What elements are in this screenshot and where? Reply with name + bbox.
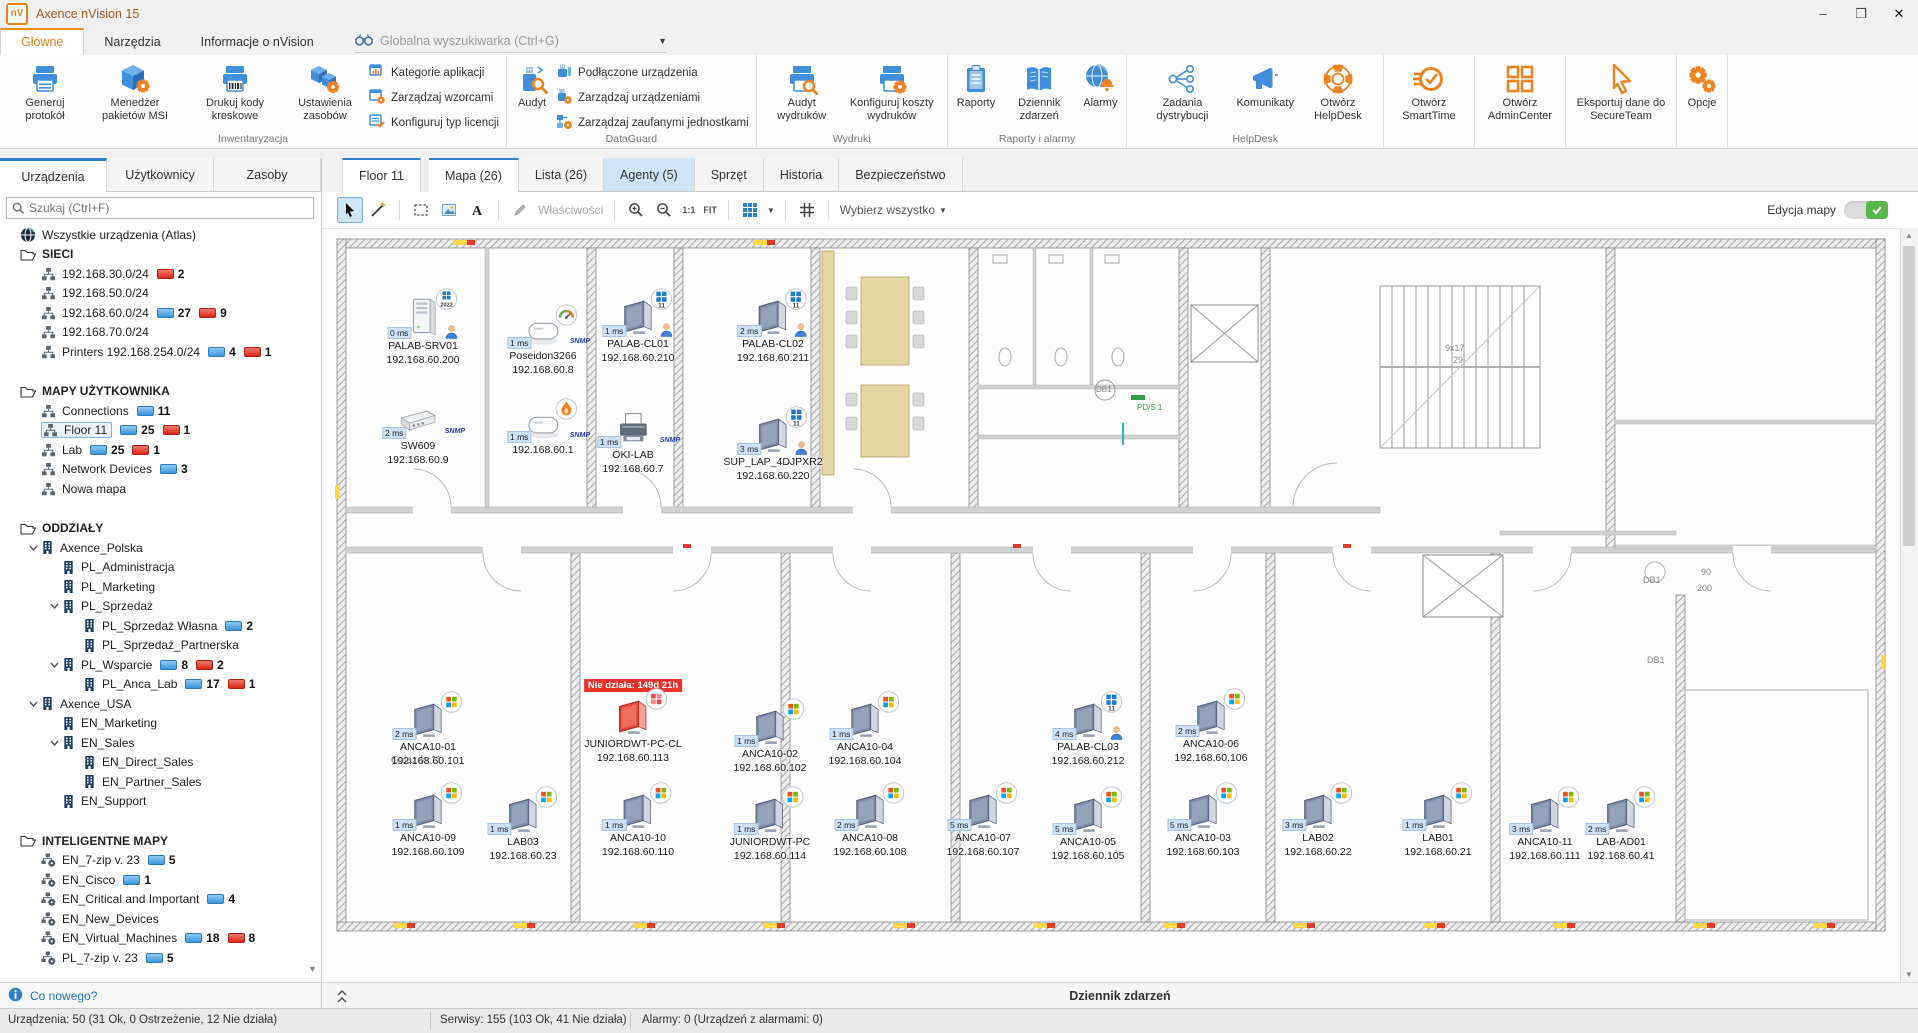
ribbon-item-zarz-dzaj-wzorcami[interactable]: Zarządzaj wzorcami [369,88,499,107]
grid-blue-icon [742,202,758,218]
map-tab-lista-26[interactable]: Lista (26) [519,158,604,192]
tree-item-en-new-devices[interactable]: EN_New_Devices [0,909,314,929]
tree-item-pl-sprzeda-w-asna[interactable]: PL_Sprzedaż Własna2 [0,616,314,636]
ping-time-chip: 5 ms [947,819,971,831]
ribbon-button-komunikaty[interactable]: Komunikaty [1232,58,1297,112]
printer-icon [29,60,61,97]
device-name: LAB-AD01 [1587,836,1654,850]
ping-time-chip: 1 ms [602,819,626,831]
smartmap-icon [41,931,56,945]
tree-item-en-cisco[interactable]: EN_Cisco1 [0,870,314,890]
logged-user-icon [793,440,809,459]
toolbar-separator [728,200,729,220]
tree-item-label: PL_Anca_Lab [102,677,177,691]
ribbon-button-audyt-wydruk-w[interactable]: Audyt wydruków [762,58,842,124]
ribbon-group-x: Otwórz AdminCenter [1475,55,1566,148]
ribbon-item-konfiguruj-typ-licencji[interactable]: Konfiguruj typ licencji [369,113,499,132]
device-juniordwt-pc-cl[interactable]: Nie działa: 149d 21h JUNIORDWT-PC-CL192.… [584,697,681,765]
device-name: ANCA10-07 [947,832,1020,846]
tree-item-192-168-50-0-24[interactable]: 192.168.50.0/24 [0,284,314,304]
ok-count-chip [137,406,154,416]
lifebuoy-icon [1322,60,1354,97]
device-name: LAB02 [1284,832,1351,846]
ribbon-button-label: Drukuj kody kreskowe [189,97,281,122]
ribbon-button-label: Audyt wydruków [766,97,838,122]
logged-user-icon [658,322,674,341]
win-check-icon [369,113,385,132]
map-annotation: DB1 [1096,385,1112,394]
tree-item-sieci[interactable]: SIECI [0,245,314,265]
map-tab-bezpiecze-stwo[interactable]: Bezpieczeństwo [839,158,962,192]
device-lab02[interactable]: 3 ms LAB02192.168.60.22 [1284,791,1351,859]
toolbar-wybierz-wszystko[interactable]: Wybierz wszystko▼ [840,203,947,217]
sidebar-tabs: UrządzeniaUżytkownicyZasoby [0,158,322,192]
building-icon [62,657,75,672]
tree-item-label: ODDZIAŁY [42,521,103,535]
monitor-icon: 5 ms [962,791,1004,832]
device-oki-lab[interactable]: 1 msSNMP OKI-LAB192.168.60.7 [602,410,663,476]
tree-scroll-down-icon[interactable]: ▼ [308,964,317,974]
tree-item-en-critical-and-important[interactable]: EN_Critical and Important4 [0,890,314,910]
ribbon-group-label [1475,132,1565,148]
tree-item-pl-wsparcie[interactable]: PL_Wsparcie82 [0,655,314,675]
svg-text:A: A [472,204,483,218]
map-tab-agenty-5[interactable]: Agenty (5) [604,158,695,192]
tree-item-pl-sprzeda-partnerska[interactable]: PL_Sprzedaż_Partnerska [0,636,314,656]
device-ip: 192.168.60.106 [1175,752,1248,766]
ribbon-group-inwentaryzacja: Generuj protokółMenedżer pakietów MSIDru… [0,55,507,148]
ribbon-group-label [1566,132,1676,148]
device-ip: 192.168.60.41 [1587,850,1654,864]
tree-item-pl-7-zip-v-23[interactable]: PL_7-zip v. 235 [0,948,314,968]
tree-item-floor-11[interactable]: Floor 11251 [0,421,314,441]
down-count: 1 [153,443,160,457]
tree-item-label: EN_Critical and Important [62,892,199,906]
ribbon-button-alarmy[interactable]: Alarmy [1079,58,1121,112]
device-ip: 192.168.60.9 [387,454,448,468]
chevron-down-icon[interactable] [27,545,40,551]
device-sup-lap-4djpxr2[interactable]: 113 ms SUP_LAP_4DJPXR2192.168.60.220 [723,415,822,483]
sidebar-tab-u-ytkownicy[interactable]: Użytkownicy [107,158,214,192]
device-ip: 192.168.60.8 [509,364,576,378]
building-icon [41,696,54,711]
ribbon-item-zarz-dzaj-zaufanymi-jednostkami[interactable]: Zarządzaj zaufanymi jednostkami [556,113,749,132]
device-anca10-11[interactable]: 3 ms ANCA10-11192.168.60.111 [1509,795,1580,863]
device-anca10-01[interactable]: 2 ms ANCA10-01192.168.60.101 [392,700,465,768]
device-192-168-60-1[interactable]: 1 msSNMP 192.168.60.1 [512,407,573,458]
sidebar-tab-zasoby[interactable]: Zasoby [214,158,321,192]
device-anca10-04[interactable]: 1 ms ANCA10-04192.168.60.104 [829,700,902,768]
app-logo-icon: nV [6,3,28,25]
device-ip: 192.168.60.210 [602,352,675,366]
monitor-icon: 3 ms [1524,795,1566,836]
tree-item-pl-administracja[interactable]: PL_Administracja [0,558,314,578]
device-name: ANCA10-09 [392,832,465,846]
event-log-bar[interactable]: Dziennik zdarzeń [322,982,1918,1009]
tree-item-printers-192-168-254-0-24[interactable]: Printers 192.168.254.0/2441 [0,342,314,362]
ribbon: Generuj protokółMenedżer pakietów MSIDru… [0,55,1918,149]
device-ip: 192.168.60.1 [512,444,573,458]
map-tab-historia[interactable]: Historia [764,158,839,192]
device-ip: 192.168.60.108 [834,846,907,860]
device-ip: 192.168.60.200 [387,354,460,368]
global-search-label: Globalna wyszukiwarka (Ctrl+G) [380,34,559,48]
folder-icon [20,248,36,261]
device-ip: 192.168.60.105 [1052,850,1125,864]
map-edit-toggle[interactable] [1844,201,1888,219]
toolbar-w-a-ciwo-ci[interactable]: Właściwości [538,203,603,217]
device-palab-cl03[interactable]: 114 ms PALAB-CL03192.168.60.212 [1052,700,1125,768]
ribbon-button-generuj-protok[interactable]: Generuj protokół [5,58,85,124]
ribbon-button-otw-rz-helpdesk[interactable]: Otwórz HelpDesk [1298,58,1378,124]
chevron-down-icon[interactable]: ▼ [767,206,775,215]
zoom-out-icon [656,202,672,218]
network-icon [41,482,56,496]
ping-time-chip: 1 ms [507,431,531,443]
title-bar: nV Axence nVision 15 –❐✕ [0,0,1918,28]
ribbon-button-dziennik-zdarze[interactable]: Dziennik zdarzeń [999,58,1079,124]
monitor-icon: 1 ms [617,791,659,832]
tree-item-en-marketing[interactable]: EN_Marketing [0,714,314,734]
ping-time-chip: 1 ms [392,819,416,831]
smartmap-icon [41,853,56,867]
device-name: ANCA10-06 [1175,738,1248,752]
ok-count: 3 [181,462,188,476]
device-ip: 192.168.60.102 [734,762,807,776]
tree-item-pl-marketing[interactable]: PL_Marketing [0,577,314,597]
ribbon-group-x: Opcje [1677,55,1728,148]
ribbon-button-otw-rz-admincenter[interactable]: Otwórz AdminCenter [1480,58,1560,124]
device-palab-cl01[interactable]: 111 ms PALAB-CL01192.168.60.210 [602,297,675,365]
device-palab-srv01[interactable]: 20220 ms PALAB-SRV01192.168.60.200 [387,297,460,367]
os-badge-icon [1223,688,1245,713]
ping-time-chip: 3 ms [1282,819,1306,831]
ribbon-button-raporty[interactable]: Raporty [953,58,1000,112]
box-icon: 1 msSNMP [522,407,564,444]
map-tabstrip: Floor 11Mapa (26)Lista (26)Agenty (5)Spr… [322,158,1918,192]
os-badge-icon: 11 [1100,691,1122,716]
tree-item-label: INTELIGENTNE MAPY [42,834,168,848]
pencil-gray-tool[interactable] [507,197,533,223]
ribbon-item-label: Kategorie aplikacji [391,67,484,79]
map-toolbar: AWłaściwości1:1FIT▼Wybierz wszystko▼ Edy… [322,192,1918,228]
tree-item-nowa-mapa[interactable]: Nowa mapa [0,479,314,499]
grid-blue-tool[interactable] [737,197,763,223]
sidebar-tab-urz-dzenia[interactable]: Urządzenia [0,158,107,192]
device-name: ANCA10-03 [1167,832,1240,846]
tree-item-label: Lab [62,443,82,457]
global-search[interactable]: Globalna wyszukiwarka (Ctrl+G) ▼ [355,30,667,53]
tree-item-en-7-zip-v-23[interactable]: EN_7-zip v. 235 [0,851,314,871]
network-icon [41,286,56,300]
device-anca10-07[interactable]: 5 ms ANCA10-07192.168.60.107 [947,791,1020,859]
image-icon [441,202,457,218]
map-scrollbar[interactable]: ▲ ▼ [1900,228,1918,982]
map-annotation: 29 [1453,355,1463,365]
os-badge-icon [440,691,462,716]
building-icon [83,618,96,633]
tree-item-oddzia-y[interactable]: ODDZIAŁY [0,519,314,539]
chevron-down-icon[interactable]: ▼ [658,36,667,46]
ok-count: 2 [246,619,253,633]
network-icon [43,423,58,437]
map-canvas-area[interactable]: 20220 ms PALAB-SRV01192.168.60.200 1 msS… [322,228,1900,983]
monitor-icon: 114 ms [1067,700,1109,741]
device-name: ANCA10-08 [834,832,907,846]
ribbon-button-label: Dziennik zdarzeń [1003,97,1075,122]
ribbon-item-label: Zarządzaj wzorcami [391,92,493,104]
tree-item-label: EN_7-zip v. 23 [62,853,140,867]
tree-item-wszystkie-urz-dzenia-atlas[interactable]: Wszystkie urządzenia (Atlas) [0,225,314,245]
os-badge-icon [877,691,899,716]
ping-time-chip: 1 ms [487,823,511,835]
ok-count-chip [120,425,137,435]
map-tab-mapa-26[interactable]: Mapa (26) [429,158,519,192]
tree-item-label: 192.168.30.0/24 [62,267,149,281]
device-anca10-06[interactable]: 2 ms ANCA10-06192.168.60.106 [1175,697,1248,765]
device-name: ANCA10-11 [1509,836,1580,850]
os-badge-icon [782,698,804,723]
snmp-label: SNMP [570,338,590,345]
device-anca10-10[interactable]: 1 ms ANCA10-10192.168.60.110 [602,791,674,859]
ribbon-button-audyt[interactable]: Audyt [512,58,552,112]
globe-bell-icon [1084,60,1116,97]
tree-item-axence-usa[interactable]: Axence_USA [0,694,314,714]
tree-item-pl-sprzeda[interactable]: PL_Sprzedaż [0,597,314,617]
ping-time-chip: 1 ms [1402,819,1426,831]
device-name: JUNIORDWT-PC [730,836,811,850]
info-icon [8,987,23,1005]
ok-count-chip [225,621,242,631]
ribbon-tab-informacje-o-nvision[interactable]: Informacje o nVision [181,30,334,55]
smartmap-icon [41,892,56,906]
ribbon-item-label: Konfiguruj typ licencji [391,117,499,129]
ribbon-button-opcje[interactable]: Opcje [1682,58,1722,112]
tree-item-connections[interactable]: Connections11 [0,401,314,421]
svg-text:11: 11 [793,421,800,428]
window-title: Axence nVision 15 [36,7,139,21]
ribbon-group-label [1677,132,1727,148]
text-a-tool[interactable]: A [464,197,490,223]
ping-time-chip: 1 ms [734,735,758,747]
ribbon-tabstrip: GłówneNarzędziaInformacje o nVision [0,27,1918,56]
ribbon-item-label: Podłączone urządzenia [578,67,698,79]
device-ip: 192.168.60.114 [730,850,811,864]
line-tool[interactable] [365,197,391,223]
chevron-down-icon[interactable] [27,701,40,707]
tree-item-en-direct-sales[interactable]: EN_Direct_Sales [0,753,314,773]
down-count-chip [244,347,261,357]
ribbon-group-x: Eksportuj dane do SecureTeam [1566,55,1677,148]
device-lab03[interactable]: 1 ms LAB03192.168.60.23 [489,795,556,863]
search-input[interactable] [25,200,313,216]
ping-time-chip: 1 ms [602,325,626,337]
whats-new-label: Co nowego? [30,989,97,1003]
close-button[interactable]: ✕ [1880,0,1918,27]
device-sw609[interactable]: 2 msSNMP SW609192.168.60.9 [387,403,448,467]
whats-new-link[interactable]: Co nowego? [0,982,322,1008]
toolbar-fit[interactable]: FIT [703,205,717,215]
device-anca10-05[interactable]: 5 ms ANCA10-05192.168.60.105 [1052,795,1125,863]
ping-time-chip: 2 ms [737,325,761,337]
down-count: 2 [217,658,224,672]
tree-item-label: EN_Support [81,794,146,808]
tree-item-network-devices[interactable]: Network Devices3 [0,460,314,480]
device-lab-ad01[interactable]: 2 ms LAB-AD01192.168.60.41 [1587,795,1654,863]
tree-item-en-sales[interactable]: EN_Sales [0,733,314,753]
device-anca10-03[interactable]: 5 ms ANCA10-03192.168.60.103 [1167,791,1240,859]
ok-count-chip [207,894,224,904]
device-ip: 192.168.60.101 [392,755,465,769]
ping-time-chip: 2 ms [1585,823,1609,835]
ok-count: 5 [169,853,176,867]
tree-item-label: Nowa mapa [62,482,126,496]
ribbon-button-label: Komunikaty [1236,97,1293,110]
network-icon [41,404,56,418]
tree-item-label: MAPY UŻYTKOWNIKA [42,384,170,398]
ribbon-button-drukuj-kody-kreskowe[interactable]: Drukuj kody kreskowe [185,58,285,124]
device-palab-cl02[interactable]: 112 ms PALAB-CL02192.168.60.211 [737,297,809,365]
toggle-check-icon [1866,201,1888,219]
ribbon-button-label: Audyt [518,97,546,110]
tree-item-192-168-30-0-24[interactable]: 192.168.30.0/242 [0,264,314,284]
share-icon [1166,60,1198,97]
device-name: ANCA10-01 [392,741,465,755]
scroll-up-icon[interactable]: ▲ [1901,231,1917,240]
ribbon-item-zarz-dzaj-urz-dzeniami[interactable]: Zarządzaj urządzeniami [556,88,749,107]
tree-item-label: EN_Virtual_Machines [62,931,177,945]
device-ip: 192.168.60.21 [1404,846,1471,860]
floor-plan-canvas: 20220 ms PALAB-SRV01192.168.60.200 1 msS… [333,235,1893,983]
down-count-chip [132,445,149,455]
network-icon [41,345,56,359]
chevron-down-icon[interactable] [48,740,61,746]
ribbon-button-konfiguruj-koszty-wydruk-w[interactable]: Konfiguruj koszty wydruków [842,58,942,124]
ribbon-button-eksportuj-dane-do-secureteam[interactable]: Eksportuj dane do SecureTeam [1571,58,1671,124]
tree-item-mapy-u-ytkownika[interactable]: MAPY UŻYTKOWNIKA [0,382,314,402]
monitor-icon: 1 ms [844,700,886,741]
os-badge-icon [782,786,804,811]
map-annotation: 90 [1701,567,1711,577]
cursor-icon [342,202,358,218]
ribbon-group-dataguard: AudytPodłączone urządzeniaZarządzaj urzą… [507,55,757,148]
building-icon [83,638,96,653]
device-name: OKI-LAB [602,449,663,463]
ok-count: 8 [181,658,188,672]
monitor-icon: 111 ms [617,297,659,338]
tree-item-en-virtual-machines[interactable]: EN_Virtual_Machines188 [0,929,314,949]
monitor-icon: 1 ms [749,795,791,836]
tree-item-pl-anca-lab[interactable]: PL_Anca_Lab171 [0,675,314,695]
ribbon-tab-narz-dzia[interactable]: Narzędzia [84,30,180,55]
ok-count-chip [123,875,140,885]
ribbon-button-label: Zadania dystrybucji [1136,97,1228,122]
monitor-icon: 1 ms [1417,791,1459,832]
device-juniordwt-pc[interactable]: 1 ms JUNIORDWT-PC192.168.60.114 [730,795,811,863]
os-badge-icon [1330,782,1352,807]
device-search[interactable] [6,197,314,219]
tree-item-inteligentne-mapy[interactable]: INTELIGENTNE MAPY [0,831,314,851]
ribbon-button-otw-rz-smarttime[interactable]: Otwórz SmartTime [1389,58,1469,124]
monitor-icon: 2 ms [1190,697,1232,738]
map-edit-control: Edycja mapy [1767,192,1888,228]
ribbon-button-label: Raporty [957,97,996,110]
scroll-down-icon[interactable]: ▼ [1901,970,1917,979]
device-anca10-02[interactable]: 1 ms ANCA10-02192.168.60.102 [734,707,807,775]
chevron-down-icon[interactable] [48,662,61,668]
ribbon-button-ustawienia-zasob-w[interactable]: Ustawienia zasobów [285,58,365,124]
device-anca10-09[interactable]: 1 ms ANCA10-09192.168.60.109 [392,791,465,859]
ribbon-item-pod-czone-urz-dzenia[interactable]: Podłączone urządzenia [556,63,749,82]
monitor-icon: 5 ms [1067,795,1109,836]
map-tab-floor-11[interactable]: Floor 11 [342,158,421,192]
zoom-out-tool[interactable] [651,197,677,223]
map-edit-label: Edycja mapy [1767,203,1836,217]
ribbon-group-label: Wydruki [757,132,947,148]
device-poseidon3266[interactable]: 1 msSNMP Poseidon3266192.168.60.8 [509,313,576,377]
ping-time-chip: 3 ms [737,443,761,455]
map-tab-sprz-t[interactable]: Sprzęt [695,158,764,192]
chevron-down-icon: ▼ [939,206,947,215]
tree-item-label: EN_Sales [81,736,134,750]
tree-item-192-168-70-0-24[interactable]: 192.168.70.0/24 [0,323,314,343]
tree-item-192-168-60-0-24[interactable]: 192.168.60.0/24279 [0,303,314,323]
usb-audit-icon [516,60,548,97]
window-controls: –❐✕ [1804,0,1918,27]
cursor-tool[interactable] [337,197,363,223]
ribbon-item-label: Zarządzaj zaufanymi jednostkami [578,117,749,129]
minimize-button[interactable]: – [1804,0,1842,27]
scrollbar-thumb[interactable] [1903,246,1915,546]
tree-item-label: Connections [62,404,129,418]
down-count-chip [199,308,216,318]
cube-gear-icon [119,60,151,97]
tree-item-axence-polska[interactable]: Axence_Polska [0,538,314,558]
ribbon-button-mened-er-pakiet-w-msi[interactable]: Menedżer pakietów MSI [85,58,185,124]
image-tool[interactable] [436,197,462,223]
ribbon-item-kategorie-aplikacji[interactable]: Kategorie aplikacji [369,63,499,82]
status-urz-dzenia: Urządzenia: 50 (31 Ok, 0 Ostrzeżenie, 12… [8,1014,277,1026]
device-ip: 192.168.60.7 [602,463,663,477]
toolbar-separator [614,200,615,220]
building-icon [62,794,75,809]
expand-panel-icon[interactable] [336,988,348,1005]
ribbon-button-zadania-dystrybucji[interactable]: Zadania dystrybucji [1132,58,1232,124]
device-anca10-08[interactable]: 2 ms ANCA10-08192.168.60.108 [834,791,907,859]
ping-time-chip: 2 ms [382,427,406,439]
tree-item-en-support[interactable]: EN_Support [0,792,314,812]
ok-count-chip [160,464,177,474]
tree-item-label: PL_Wsparcie [81,658,152,672]
maximize-button[interactable]: ❐ [1842,0,1880,27]
tree-item-en-partner-sales[interactable]: EN_Partner_Sales [0,772,314,792]
ok-count-chip [185,933,202,943]
toolbar-separator [399,200,400,220]
down-count: 2 [178,267,185,281]
zoom-in-tool[interactable] [623,197,649,223]
tree-item-lab[interactable]: Lab251 [0,440,314,460]
map-annotation: DB1 [1643,575,1661,585]
down-count: 1 [184,423,191,437]
chevron-down-icon[interactable] [48,603,61,609]
grid-dark-tool[interactable] [794,197,820,223]
snmp-label: SNMP [570,432,590,439]
ok-count: 4 [229,345,236,359]
device-lab01[interactable]: 1 ms LAB01192.168.60.21 [1404,791,1471,859]
ribbon-tab-g-wne[interactable]: Główne [0,28,84,55]
marquee-tool[interactable] [408,197,434,223]
toolbar-1-1[interactable]: 1:1 [682,205,695,215]
